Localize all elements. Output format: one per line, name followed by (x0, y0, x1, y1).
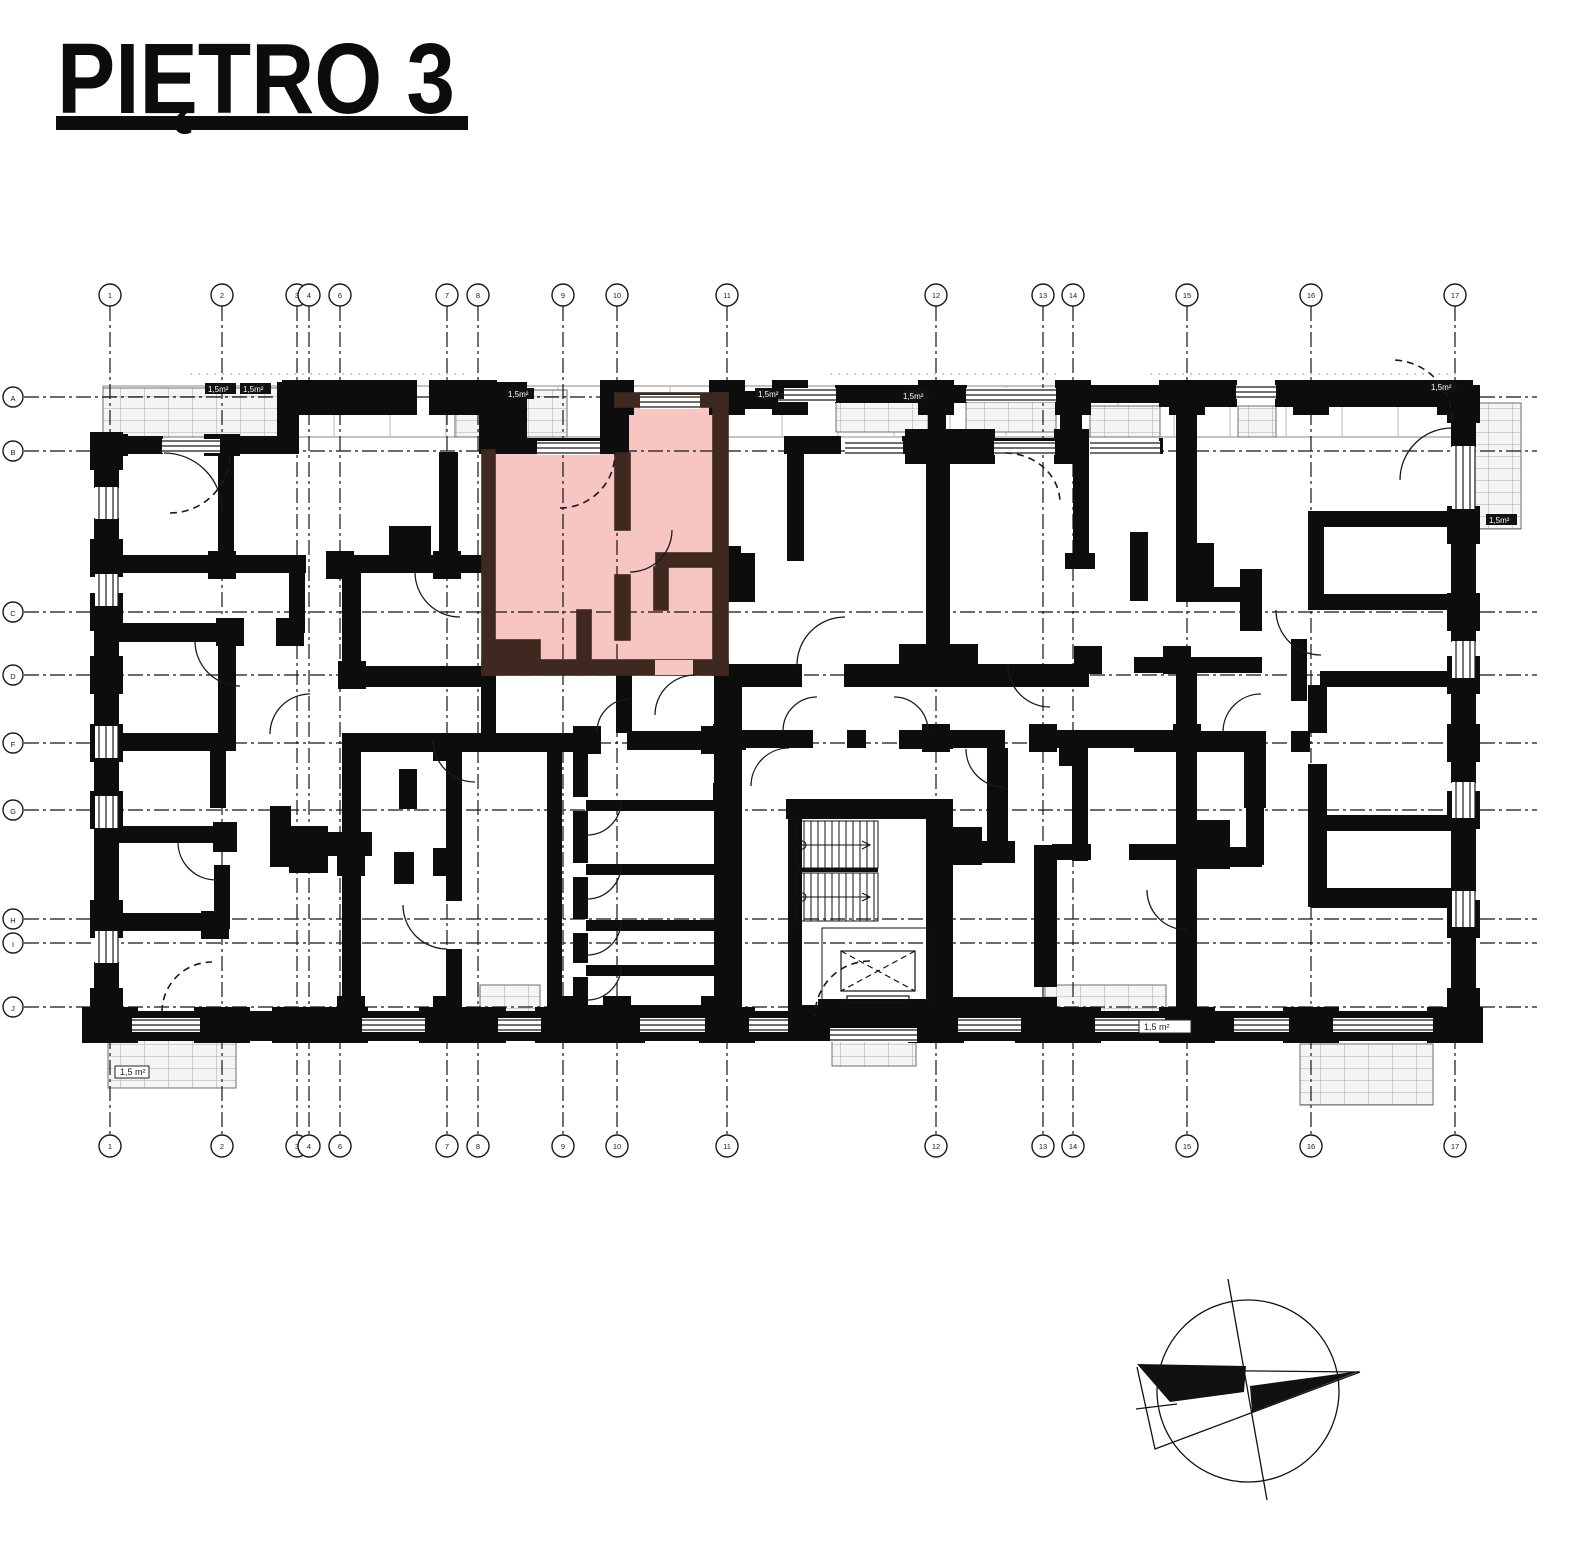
svg-text:D: D (10, 672, 16, 681)
svg-text:11: 11 (723, 1142, 731, 1151)
svg-text:1,5 m²: 1,5 m² (1144, 1022, 1170, 1032)
svg-text:13: 13 (1039, 1142, 1047, 1151)
svg-text:1,5m²: 1,5m² (508, 390, 529, 399)
svg-text:15: 15 (1183, 291, 1191, 300)
svg-text:G: G (10, 807, 16, 816)
svg-text:14: 14 (1069, 291, 1077, 300)
svg-text:16: 16 (1307, 1142, 1315, 1151)
svg-text:1: 1 (108, 1142, 112, 1151)
svg-text:14: 14 (1069, 1142, 1077, 1151)
svg-text:1,5m²: 1,5m² (758, 390, 779, 399)
svg-text:1,5m²: 1,5m² (243, 385, 264, 394)
svg-text:1,5 m²: 1,5 m² (120, 1067, 146, 1077)
svg-text:A: A (10, 394, 15, 403)
svg-text:1: 1 (108, 291, 112, 300)
svg-text:2: 2 (220, 291, 224, 300)
svg-text:8: 8 (476, 1142, 480, 1151)
svg-text:15: 15 (1183, 1142, 1191, 1151)
svg-text:B: B (10, 448, 15, 457)
svg-text:7: 7 (445, 1142, 449, 1151)
svg-text:17: 17 (1451, 291, 1459, 300)
svg-text:4: 4 (307, 291, 311, 300)
svg-text:6: 6 (338, 1142, 342, 1151)
svg-text:I: I (12, 940, 14, 949)
svg-text:6: 6 (338, 291, 342, 300)
svg-text:H: H (10, 916, 15, 925)
svg-text:3: 3 (295, 1142, 299, 1151)
svg-text:1,5m²: 1,5m² (1489, 516, 1510, 525)
svg-text:2: 2 (220, 1142, 224, 1151)
svg-text:J: J (11, 1004, 15, 1013)
svg-text:10: 10 (613, 1142, 621, 1151)
svg-text:8: 8 (476, 291, 480, 300)
svg-text:C: C (10, 609, 16, 618)
svg-text:F: F (11, 740, 16, 749)
svg-text:16: 16 (1307, 291, 1315, 300)
svg-text:9: 9 (561, 291, 565, 300)
svg-text:7: 7 (445, 291, 449, 300)
svg-text:4: 4 (307, 1142, 311, 1151)
svg-text:17: 17 (1451, 1142, 1459, 1151)
svg-text:10: 10 (613, 291, 621, 300)
svg-text:1,5m²: 1,5m² (903, 392, 924, 401)
svg-text:13: 13 (1039, 291, 1047, 300)
svg-text:1,5m²: 1,5m² (1431, 383, 1452, 392)
svg-text:1,5m²: 1,5m² (208, 385, 229, 394)
svg-text:12: 12 (932, 1142, 940, 1151)
svg-text:12: 12 (932, 291, 940, 300)
svg-text:3: 3 (295, 291, 299, 300)
svg-text:11: 11 (723, 291, 731, 300)
svg-text:9: 9 (561, 1142, 565, 1151)
